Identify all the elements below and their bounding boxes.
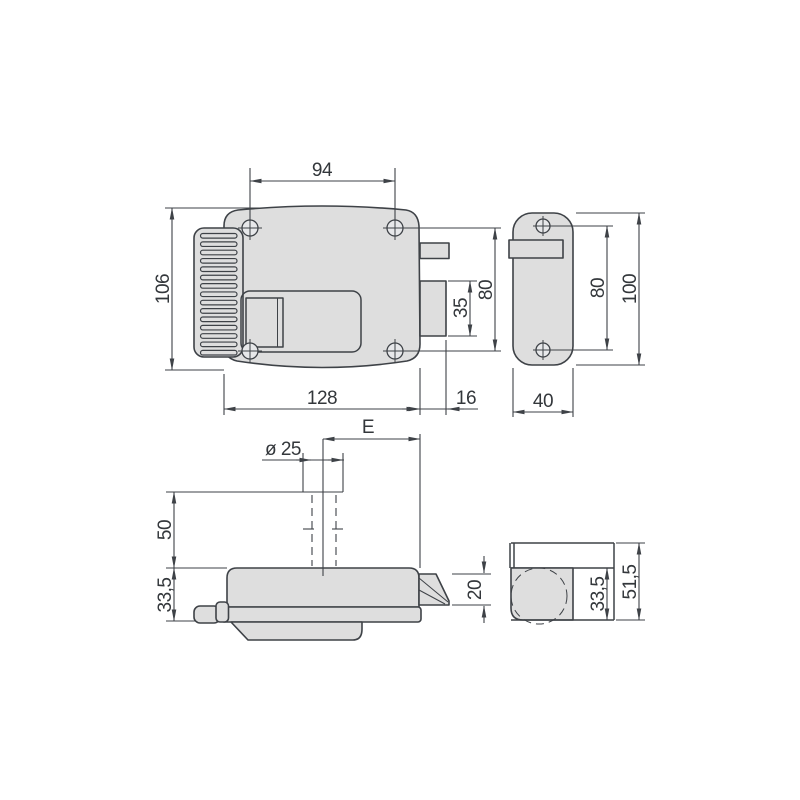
rib-slat (201, 267, 238, 272)
rib-slat (201, 250, 238, 255)
strike-front-view (509, 213, 645, 417)
dimension-label-128: 128 (307, 388, 337, 409)
rib-slat (201, 275, 238, 280)
dim-E-lines (323, 434, 420, 568)
dimension-label-35: 35 (451, 298, 472, 318)
dimension-label-E: E (362, 417, 374, 438)
dimension-label-40: 40 (533, 391, 553, 412)
rib-slat (201, 242, 238, 247)
rib-slat (201, 325, 238, 330)
lock-plan-knob (216, 602, 229, 622)
dimension-label-94: 94 (312, 160, 333, 181)
rib-group (201, 234, 238, 356)
rib-slat (201, 309, 238, 314)
dimension-label-16: 16 (456, 388, 476, 409)
technical-drawing-canvas: 941061281635808010040Eø 255033,52033,551… (0, 0, 800, 800)
drawing-page: 941061281635808010040Eø 255033,52033,551… (0, 0, 800, 800)
latch-bolt-front (420, 281, 446, 336)
rib-slat (201, 284, 238, 289)
rib-slat (201, 350, 238, 355)
lock-front-view (165, 168, 501, 415)
dimension-label-80-lock: 80 (476, 280, 497, 300)
dimension-label-33-5-lock: 33,5 (155, 578, 176, 613)
rib-slat (201, 334, 238, 339)
deadbolt-tab (420, 243, 449, 259)
dimension-label-106: 106 (153, 274, 174, 304)
rib-slat (201, 234, 238, 239)
rib-slat (201, 300, 238, 305)
latch-bolt-plan (419, 574, 449, 605)
dimension-label-dia-25: ø 25 (265, 439, 301, 460)
dimension-label-50: 50 (155, 520, 176, 540)
lock-plan-view (166, 434, 491, 640)
dimension-label-33-5-strike: 33,5 (588, 577, 609, 612)
lock-plan-base-plate (221, 607, 421, 622)
dimension-label-80-strike: 80 (588, 278, 609, 298)
dimension-label-100: 100 (620, 274, 641, 304)
dimension-label-20: 20 (465, 580, 486, 600)
dimension-label-51-5: 51,5 (620, 565, 641, 600)
rib-slat (201, 342, 238, 347)
lock-plan-bottom-cover (231, 622, 362, 640)
rib-slat (201, 292, 238, 297)
strike-slot (509, 240, 563, 258)
rib-slat (201, 317, 238, 322)
rib-slat (201, 259, 238, 264)
